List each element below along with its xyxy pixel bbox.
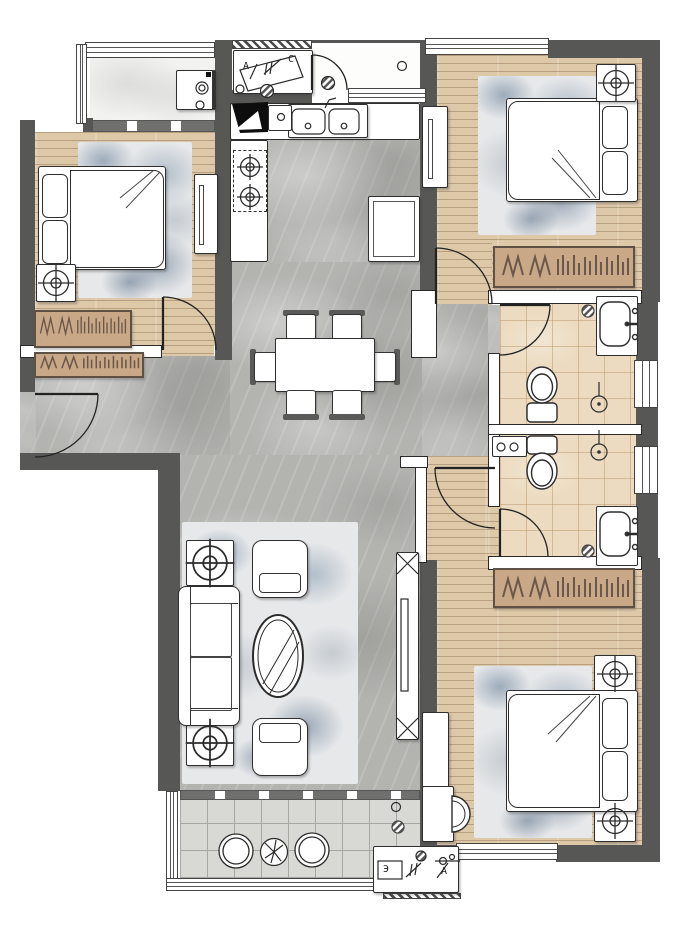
window-bedroom2-top: [425, 38, 549, 55]
wall-corridor-stub: [400, 456, 428, 468]
wall-right-bath-a: [636, 302, 658, 362]
bed1-mattress: [70, 170, 164, 268]
bed2-lamp-table: [596, 64, 636, 102]
sliding-window-bedroom1-balcony: [92, 120, 215, 132]
tv-cabinet-line: [428, 119, 433, 179]
dining-table: [275, 338, 375, 392]
bedroom1-wardrobe: [34, 310, 132, 348]
wall-right-lower: [642, 558, 660, 855]
dining-chair-back: [283, 414, 319, 420]
armchair-bottom: [252, 718, 308, 776]
floor-corridor-doorway: [428, 456, 496, 468]
washing-machine: [176, 70, 216, 110]
wall-living-left: [158, 455, 180, 791]
kitchen-small-box: [268, 105, 292, 131]
dining-chair: [372, 352, 396, 382]
bed1-lamp-table: [36, 264, 76, 302]
kitchen-stove: [233, 150, 267, 212]
bed1-pillow-b: [42, 220, 68, 264]
wall-left-bedroom1: [20, 120, 35, 360]
foyer-legend-box: [233, 50, 313, 94]
window-balcony-tl-left: [76, 44, 87, 124]
fence-hatch-bottom: [383, 893, 461, 899]
dining-chair: [332, 314, 362, 340]
dining-chair: [286, 390, 316, 416]
dining-chair: [332, 390, 362, 416]
legend-top-letter-c: C: [288, 54, 294, 65]
armchair-top: [252, 540, 308, 598]
bed3-lamp-table-top: [594, 655, 636, 693]
sofa-cushion: [190, 657, 232, 711]
bed3-pillow-b: [602, 751, 628, 801]
bed2-pillow-b: [602, 151, 628, 195]
wall-corridor-left: [415, 458, 427, 563]
side-table-top: [186, 540, 234, 586]
hall-closet: [34, 352, 144, 378]
bath2-vanity: [596, 506, 638, 566]
sliding-door-balcony: [180, 790, 420, 800]
bed1-pillow-a: [42, 174, 68, 218]
bath2-hookup-counter: [492, 436, 527, 457]
dining-chair-back: [329, 414, 365, 420]
window-bathroom-lower: [634, 446, 658, 494]
fence-hatch-top: [232, 40, 312, 49]
window-bedroom3-bottom: [456, 843, 558, 860]
tv-console: [396, 552, 419, 740]
armchair-seat: [259, 723, 301, 743]
wall-entry-bottom: [20, 453, 180, 470]
wall-bottom-b: [556, 845, 660, 862]
bedroom2-wardrobe: [493, 246, 635, 288]
floor-bath2-doorway: [488, 505, 500, 557]
bed3-mattress: [508, 694, 600, 808]
kitchen-fridge-cabinet: [368, 196, 420, 262]
floor-bath1-doorway: [488, 305, 500, 355]
legend-top-letter-a: A: [243, 61, 249, 72]
dining-chair: [286, 314, 316, 340]
bedroom3-desk: [422, 712, 449, 788]
tv-cabinet-line: [199, 185, 204, 245]
bed2-mattress: [508, 101, 600, 200]
bedroom3-cabinet: [422, 786, 454, 842]
floor-plan: A C Э A: [0, 0, 693, 927]
wall-bath-divider: [488, 424, 642, 435]
kitchen-sink-unit: [288, 104, 368, 138]
wall-line-foyer-top: [312, 40, 425, 43]
legend-bottom-letter-e: Э: [383, 864, 389, 875]
window-foyer-pass: [348, 88, 426, 103]
bath1-vanity: [596, 296, 638, 356]
sofa-armrest-top: [190, 587, 238, 604]
legend-bottom-letter-a: A: [441, 866, 447, 877]
bed2-tv-cabinet: [422, 106, 448, 188]
wall-dining-screen: [411, 290, 437, 358]
window-bathroom-upper: [634, 360, 658, 408]
wall-right-bath-c: [636, 492, 658, 558]
floor-corridor: [425, 465, 497, 571]
bedroom3-wardrobe: [493, 568, 635, 608]
side-table-bottom: [186, 720, 234, 766]
floor-entry-doorway: [20, 392, 36, 453]
sofa: [178, 586, 240, 726]
armchair-seat: [259, 573, 301, 593]
fridge-inner-line: [373, 201, 415, 257]
floor-bedroom2-door-nook: [437, 243, 492, 305]
sofa-cushion: [190, 603, 232, 657]
window-balcony-tl: [85, 42, 215, 58]
wall-right-upper: [642, 42, 660, 302]
bed1-tv-cabinet: [194, 174, 218, 254]
bed3-pillow-a: [602, 698, 628, 749]
glass-railing-balcony-left: [166, 791, 178, 889]
bed2-pillow-a: [602, 106, 628, 149]
wall-left-entry: [20, 360, 35, 392]
